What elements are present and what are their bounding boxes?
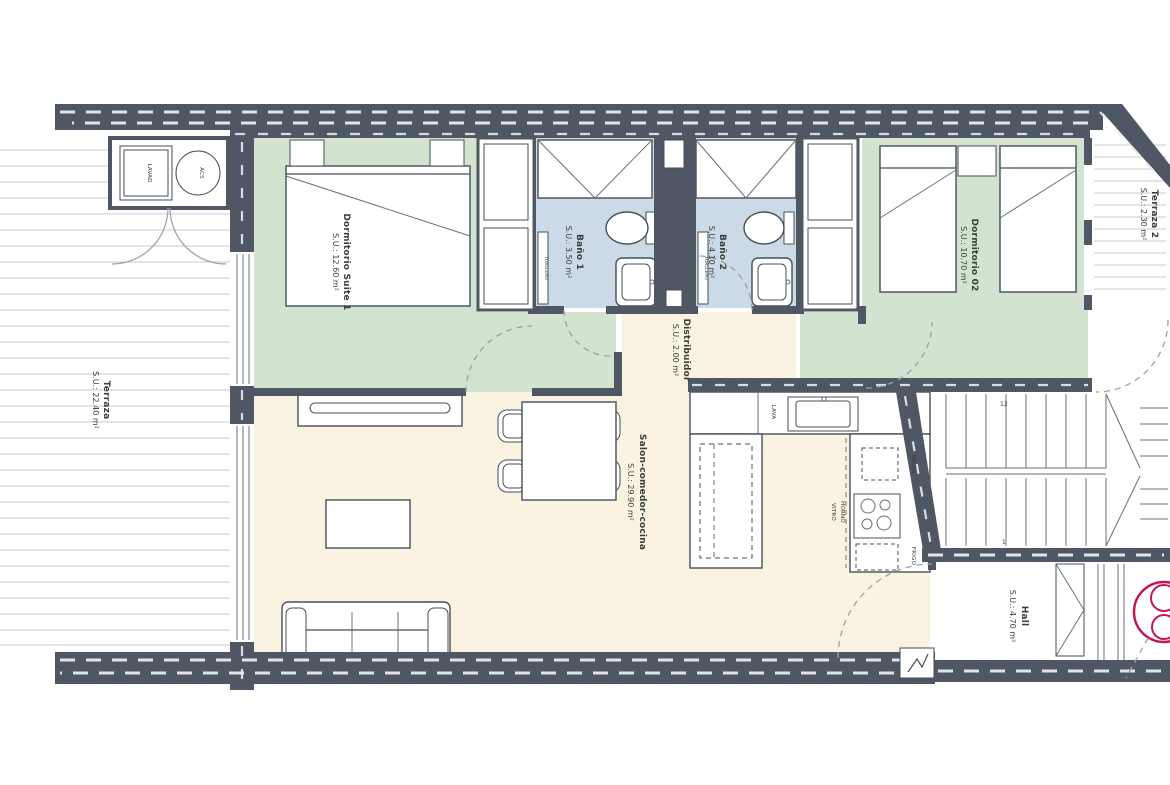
terrace-deck-lines	[0, 150, 230, 645]
closet-door-left	[112, 208, 168, 264]
closet-door-right	[170, 208, 226, 264]
window-terraza2-b	[1084, 245, 1092, 295]
label-terraza-area: S.U.: 22.40 m²	[91, 371, 100, 429]
bath1-sink	[616, 258, 656, 306]
label-toallero-1: TOALLERO	[543, 255, 549, 280]
label-terraza2-name: Terraza 2	[1149, 190, 1159, 239]
label-hall-area: S.U.: 4.70 m²	[1008, 590, 1017, 643]
label-dorm02-area: S.U.: 10.70 m²	[959, 226, 968, 284]
label-salon-name: Salon-comedor-cocina	[637, 434, 647, 550]
label-acs: ACS	[198, 167, 204, 179]
label-suite1-name: Dormitorio Suite 1	[341, 213, 351, 310]
floor-plan-svg: Terraza S.U.: 22.40 m² Dormitorio Suite …	[0, 0, 1170, 785]
floor-plan: Terraza S.U.: 22.40 m² Dormitorio Suite …	[0, 0, 1170, 785]
label-vitro: VITRO	[830, 503, 836, 521]
window-terraza2-a	[1084, 165, 1092, 220]
hall-door-panel	[1056, 564, 1124, 660]
label-hall-name: Hall	[1019, 606, 1029, 627]
tv-sideboard	[298, 394, 462, 426]
wardrobe-dorm02	[802, 138, 858, 310]
label-bano1-area: S.U.: 3.50 m²	[564, 226, 573, 279]
stairwell	[946, 394, 1168, 546]
window-salon	[230, 424, 254, 642]
single-bed-1	[880, 146, 956, 292]
label-salon-area: S.U.: 29.90 m²	[626, 463, 635, 521]
bath2-shower	[696, 140, 796, 198]
bath2-toilet	[744, 212, 794, 244]
wardrobe-suite	[478, 138, 534, 310]
label-stair-bottom: 1	[1002, 539, 1006, 546]
label-dorm02-name: Dormitorio 02	[969, 218, 979, 291]
label-horno: HORNO	[839, 501, 845, 523]
label-frigo: FRIGO	[910, 547, 916, 566]
label-distribuidor-area: S.U.: 2.00 m²	[671, 324, 680, 377]
nightstand	[958, 146, 996, 176]
room-suite-vestibule	[480, 312, 616, 392]
electrical-panel-icon	[900, 648, 934, 678]
label-bano1-name: Baño 1	[574, 234, 584, 270]
label-distribuidor-name: Distribuidor	[681, 318, 691, 381]
label-micro: MICRO	[910, 454, 916, 474]
label-toallero-2: TOALLERO	[703, 255, 709, 280]
coffee-table	[326, 500, 410, 548]
utility-closet	[110, 138, 228, 264]
label-terraza-name: Terraza	[101, 381, 111, 420]
label-terraza2-area: S.U.: 2.30 m²	[1139, 188, 1148, 241]
kitchen-peninsula	[690, 434, 762, 568]
label-lavadora: LAVAD	[146, 163, 152, 182]
kitchen-counter	[690, 392, 930, 434]
bath1-toilet	[606, 212, 656, 244]
single-bed-2	[1000, 146, 1076, 292]
window-suite	[230, 252, 254, 386]
door-landing	[1096, 320, 1168, 392]
label-lava: LAVA	[770, 405, 776, 420]
label-suite1-area: S.U.: 12.60 m²	[331, 233, 340, 291]
label-bano2-name: Baño 2	[717, 234, 727, 270]
label-stair-top: 12	[1000, 401, 1008, 408]
bath1-shower	[538, 140, 652, 198]
bath2-sink	[752, 258, 792, 306]
